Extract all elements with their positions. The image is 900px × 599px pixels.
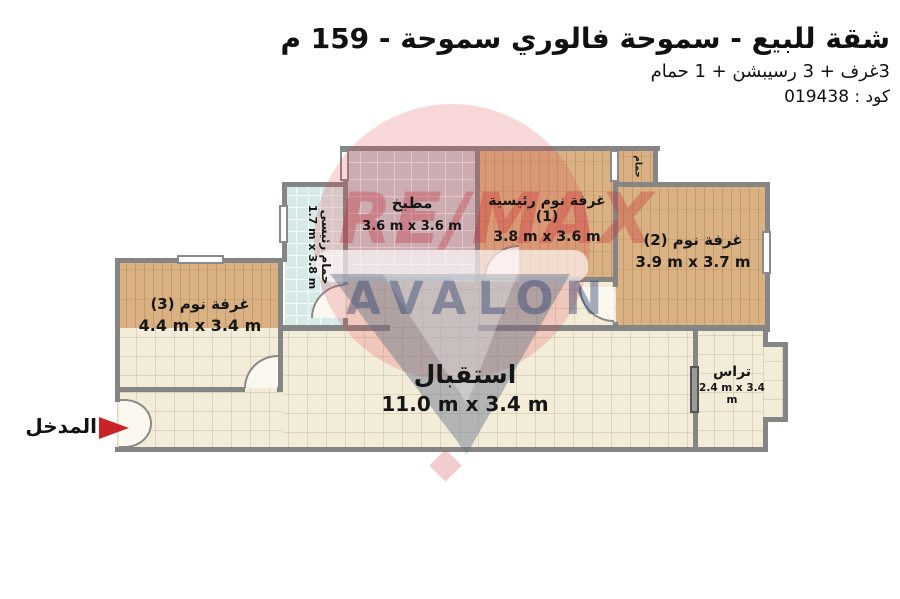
room-name: غرفة نوم (3) [122,295,278,313]
room-label-bedroom-2: غرفة نوم (2) 3.9 m x 3.7 m [620,231,766,271]
wall-terrace-right-lower [763,417,768,452]
wall-kitchen-bottom [343,277,451,282]
room-dims: 3.9 m x 3.7 m [620,253,766,271]
room-dims: 11.0 m x 3.4 m [290,392,640,416]
room-label-kitchen: مطبخ 3.6 m x 3.6 m [348,194,476,234]
room-label-main-bathroom: حمام رئيسى 1.7 m x 3.8 m [293,190,333,304]
room-name: مطبخ [348,194,476,212]
room-label-master-bedroom: غرفة نوم رئيسية (1) 3.8 m x 3.6 m [480,193,614,245]
entrance-label: المدخل [18,414,97,438]
room-label-reception: استقبال 11.0 m x 3.4 m [290,360,640,416]
watermark-balloon-basket [429,449,462,482]
room-name: حمام [633,149,643,185]
wall-bathroom-top [282,182,348,187]
room-label-small-bathroom: حمام [630,149,643,185]
wall-bedroom3-right [278,258,283,392]
listing-subtitle: 3غرف + 3 رسيبشن + 1 حمام [651,61,890,82]
floor-hall [346,280,616,328]
room-name: حمام رئيسى [319,190,333,304]
room-name: تراس [698,364,766,380]
room-dims: 4.4 m x 3.4 m [122,316,278,335]
room-dims: 2.4 m x 3.4 m [698,382,766,406]
door-marker-small-bathroom [610,150,619,182]
wall-left [115,258,120,402]
wall-terrace-right-upper [763,331,768,347]
room-label-bedroom-3: غرفة نوم (3) 4.4 m x 3.4 m [122,295,278,335]
wall-bedroom1-bottom [519,277,618,282]
wall-bedroom3-bottom [115,387,245,392]
wall-reception-top-right [478,325,770,331]
window-bathroom-left [279,205,288,243]
wall-terrace-bump-right [783,342,788,422]
wall-reception-top-left [282,325,390,331]
room-name: استقبال [290,360,640,389]
wall-kitchen-left-lower [343,318,348,331]
room-label-terrace: تراس 2.4 m x 3.4 m [698,364,766,406]
listing-code: كود : 019438 [784,87,890,107]
window-kitchen-left [340,150,349,181]
window-bedroom3-top [177,255,224,264]
entrance-arrow-icon [99,417,129,439]
room-dims: 3.6 m x 3.6 m [348,219,476,234]
listing-title: شقة للبيع - سموحة فالوري سموحة - 159 م [280,22,890,55]
room-dims: 1.7 m x 3.8 m [306,190,319,304]
room-name: غرفة نوم (2) [620,231,766,249]
wall-bedroom1-right-lower [613,322,618,331]
room-dims: 3.8 m x 3.6 m [480,229,614,245]
floor-terrace-bump [763,345,785,419]
wall-bottom [115,447,768,452]
room-name: غرفة نوم رئيسية (1) [480,193,614,225]
wall-small-bathroom-right [653,146,658,187]
